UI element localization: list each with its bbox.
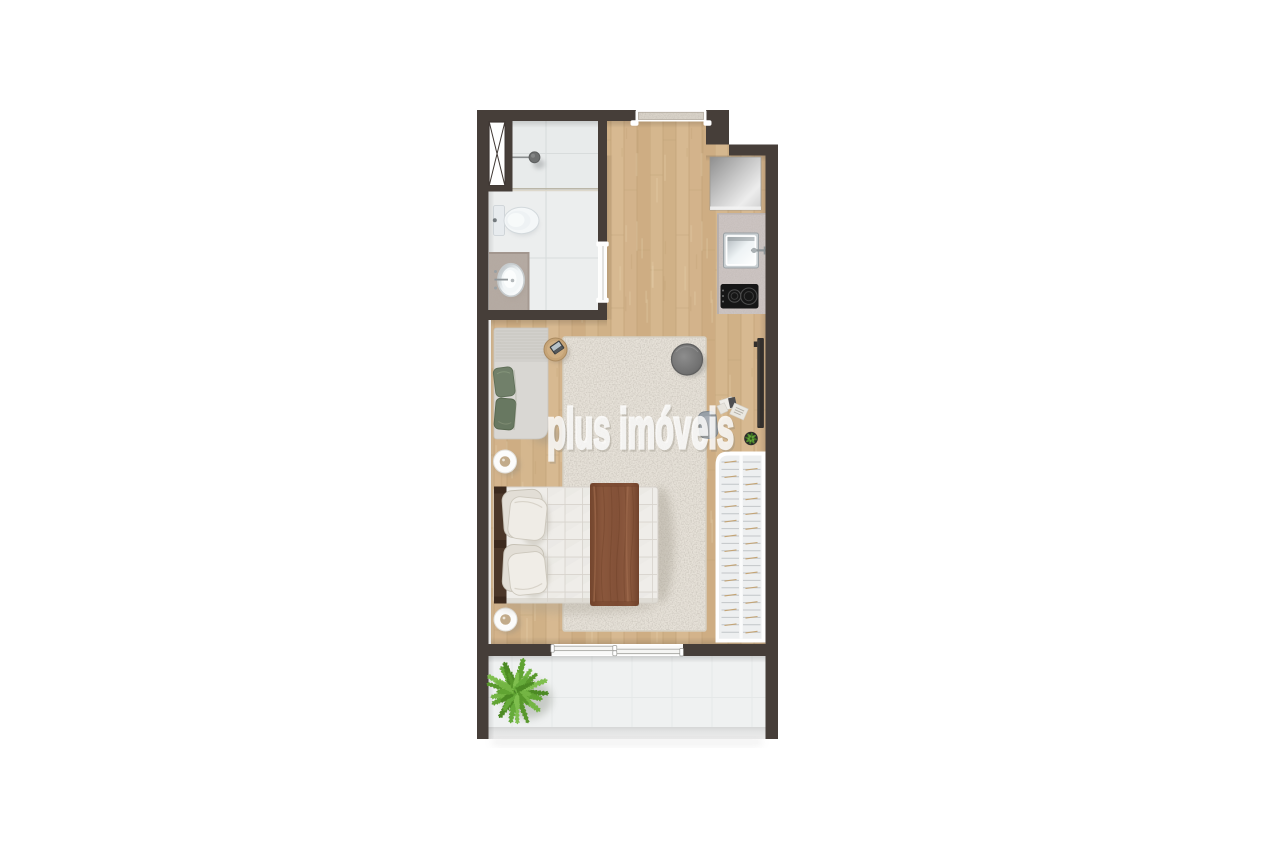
- svg-text:plus imóveis: plus imóveis: [547, 397, 734, 461]
